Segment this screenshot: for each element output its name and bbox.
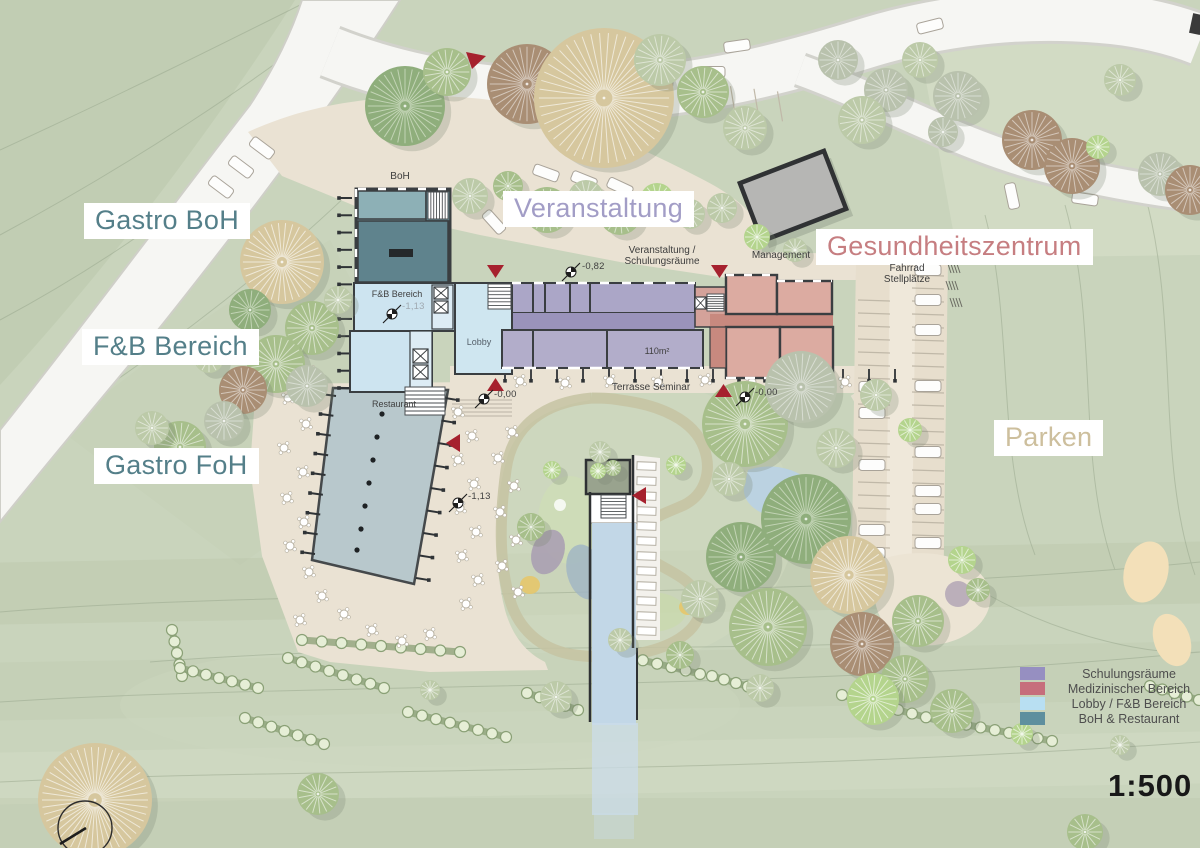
legend-label: BoH & Restaurant <box>1053 712 1200 726</box>
annotation-veranstaltung-schulung: Veranstaltung / Schulungsräume <box>624 246 699 267</box>
legend-row: Schulungsräume <box>1020 666 1200 681</box>
annotation-boh: BoH <box>390 172 409 183</box>
annotation-management: Management <box>752 251 810 262</box>
legend-swatch-lobby-fb <box>1020 697 1045 710</box>
legend-label: Lobby / F&B Bereich <box>1053 697 1200 711</box>
site-plan: Gastro BoH F&B Bereich Gastro FoH Verans… <box>0 0 1200 848</box>
annotation-lobby: Lobby <box>467 338 492 347</box>
elevation-000-right: -0,00 <box>755 388 778 398</box>
legend-swatch-medizinischer-bereich <box>1020 682 1045 695</box>
legend-label: Medizinischer Bereich <box>1053 682 1200 696</box>
elevation-000-left: -0,00 <box>494 390 517 400</box>
elevation-082: -0,82 <box>582 262 605 272</box>
elevation-113-terrace: -1,13 <box>468 492 491 502</box>
area-label-parken: Parken <box>994 420 1103 456</box>
legend: Schulungsräume Medizinischer Bereich Lob… <box>1020 666 1200 726</box>
annotation-restaurant: Restaurant <box>372 400 416 409</box>
annotation-fahrrad-stellplaetze: Fahrrad Stellplätze <box>884 264 930 285</box>
annotation-room-area: 110m² <box>645 347 670 356</box>
legend-row: BoH & Restaurant <box>1020 711 1200 726</box>
area-label-fb-bereich: F&B Bereich <box>82 329 259 365</box>
legend-label: Schulungsräume <box>1053 667 1200 681</box>
elevation-113-fb: -1,13 <box>402 302 425 312</box>
legend-row: Medizinischer Bereich <box>1020 681 1200 696</box>
area-label-veranstaltung: Veranstaltung <box>503 191 694 227</box>
annotation-terrasse-seminar: Terrasse Seminar <box>612 383 690 394</box>
legend-swatch-schulungsraeume <box>1020 667 1045 680</box>
annotation-fb-room: F&B Bereich <box>372 290 423 299</box>
area-label-gesundheitszentrum: Gesundheitszentrum <box>816 229 1093 265</box>
legend-swatch-boh-restaurant <box>1020 712 1045 725</box>
area-label-gastro-boh: Gastro BoH <box>84 203 250 239</box>
scale-label: 1:500 <box>1108 768 1192 804</box>
legend-row: Lobby / F&B Bereich <box>1020 696 1200 711</box>
area-label-gastro-foh: Gastro FoH <box>94 448 259 484</box>
